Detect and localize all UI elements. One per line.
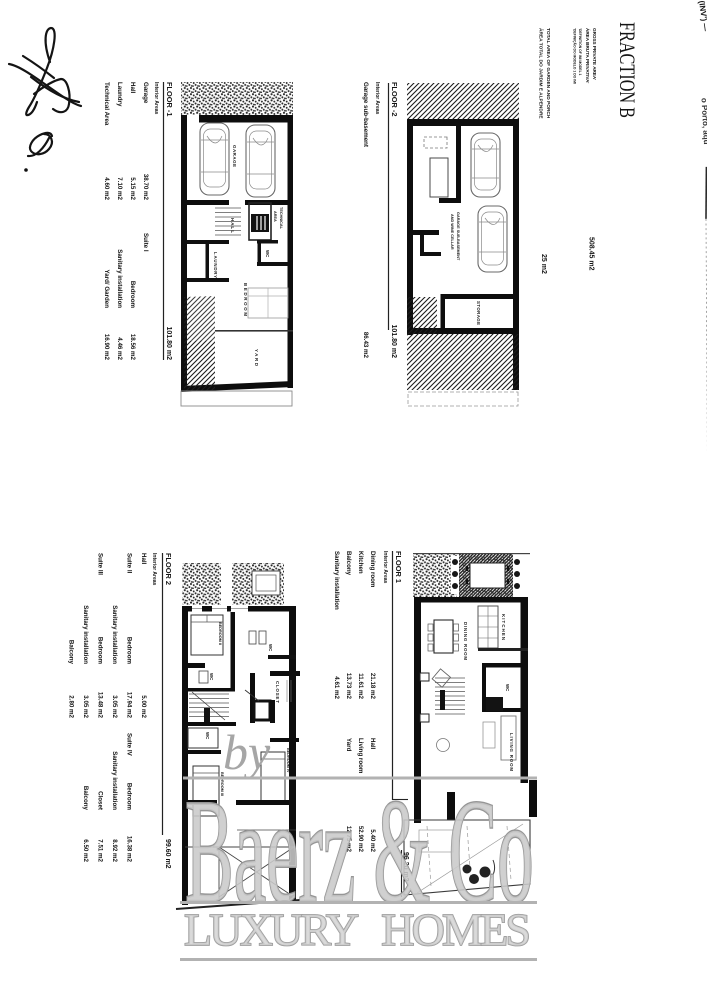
svg-text:LUXURY HOMES: LUXURY HOMES <box>184 904 531 955</box>
